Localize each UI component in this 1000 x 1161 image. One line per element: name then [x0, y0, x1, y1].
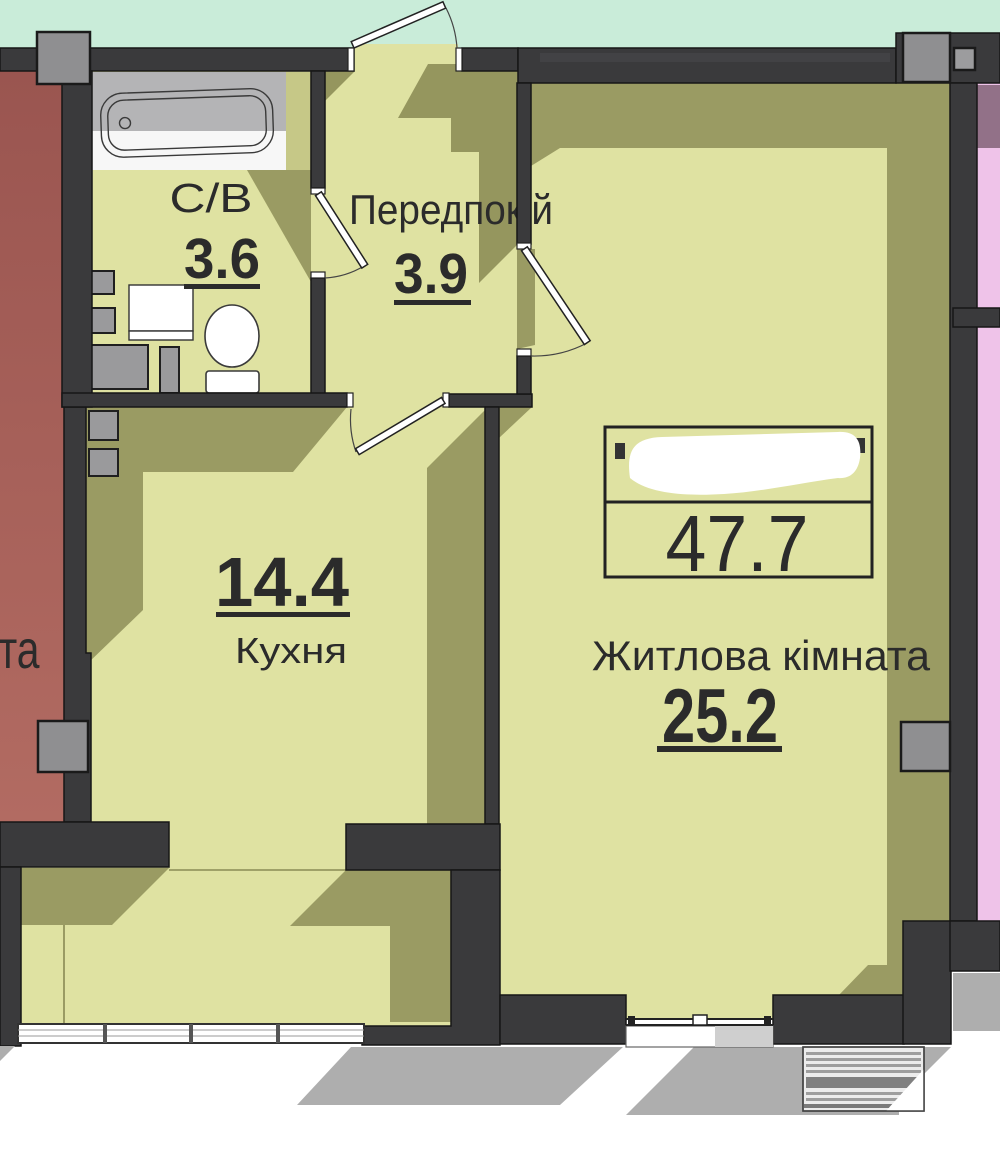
- svg-text:3.6: 3.6: [184, 227, 260, 291]
- svg-text:та: та: [0, 620, 40, 680]
- svg-text:47.7: 47.7: [666, 499, 809, 588]
- svg-text:Житлова кімната: Житлова кімната: [592, 632, 931, 679]
- svg-text:С/В: С/В: [170, 175, 253, 221]
- svg-text:Кухня: Кухня: [235, 630, 347, 671]
- svg-text:14.4: 14.4: [215, 543, 349, 621]
- svg-text:3.9: 3.9: [394, 242, 468, 306]
